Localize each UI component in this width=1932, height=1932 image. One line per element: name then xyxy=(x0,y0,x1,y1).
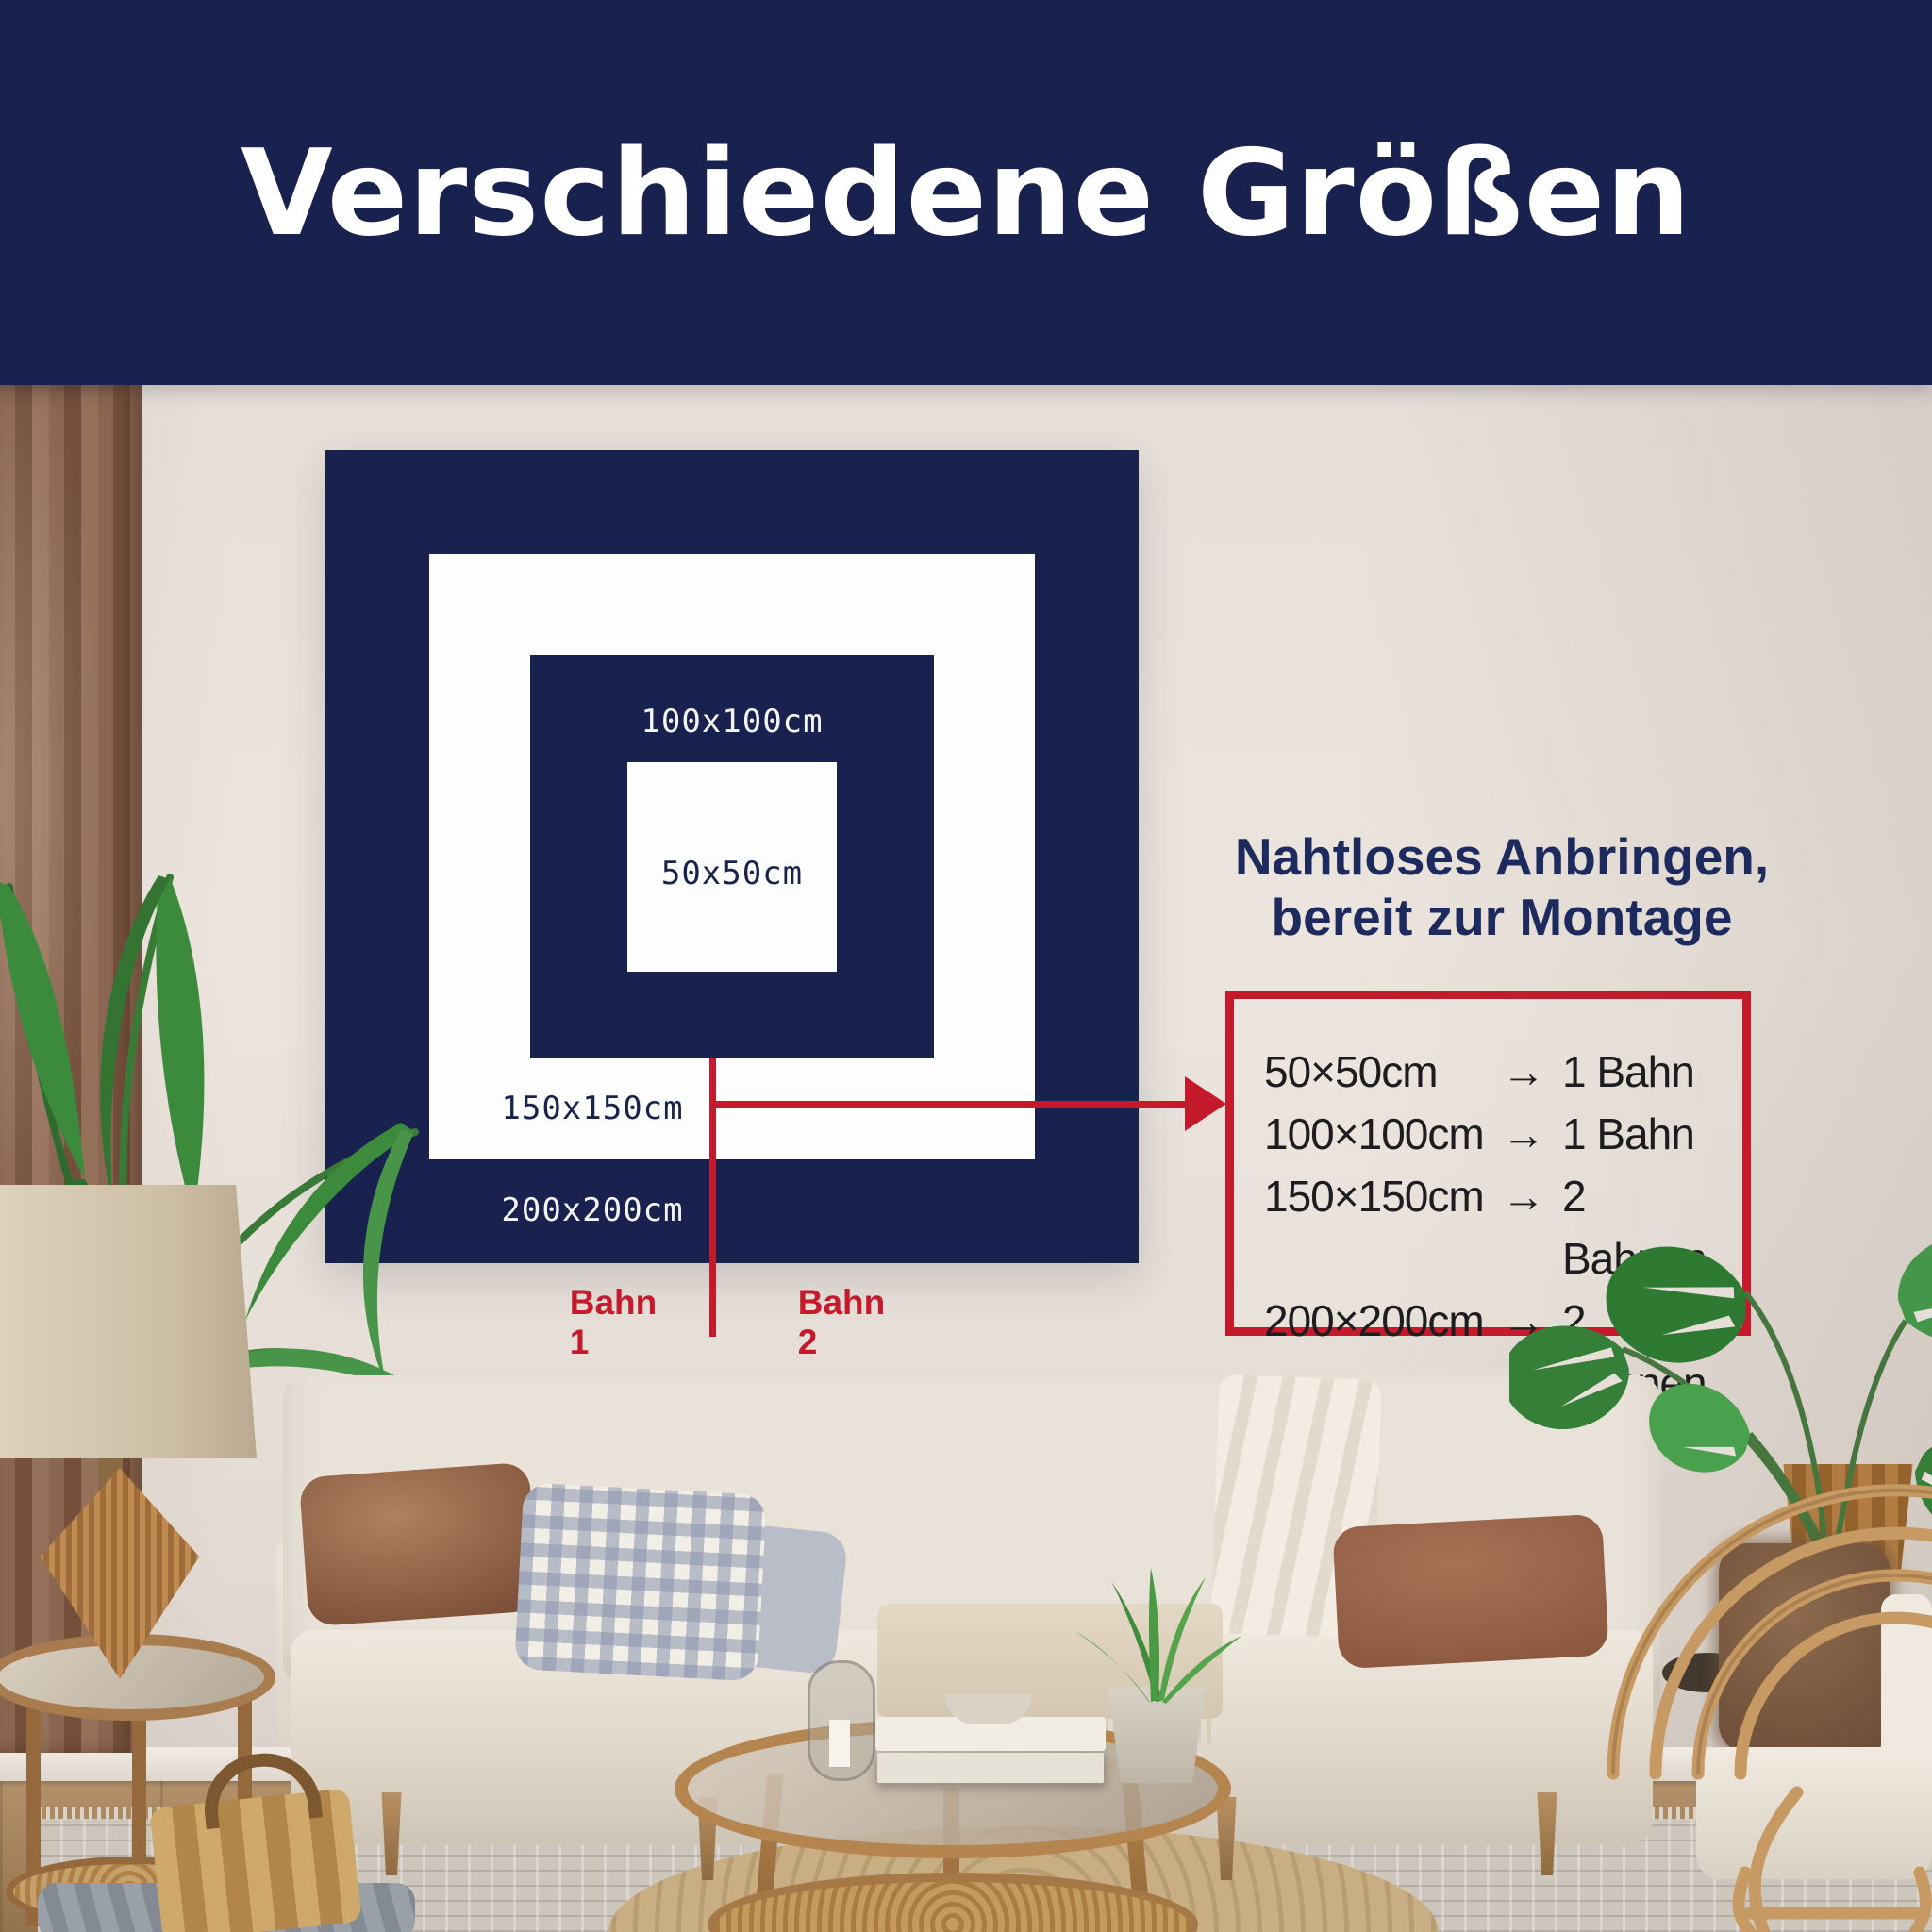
candle-holder xyxy=(808,1660,875,1781)
page-title: Verschiedene Größen xyxy=(241,124,1691,262)
row-size: 100×100cm xyxy=(1264,1103,1502,1165)
brown-velvet-pillow xyxy=(299,1462,539,1627)
checked-pillow xyxy=(514,1482,767,1681)
rust-pillow xyxy=(1332,1514,1608,1670)
arrow-icon: → xyxy=(1502,1103,1562,1165)
red-arrow-head-icon xyxy=(1185,1076,1226,1131)
banner: Verschiedene Größen xyxy=(0,0,1932,385)
panel-heading: Nahtloses Anbringen, bereit zur Montage xyxy=(1219,826,1785,947)
rattan-armchair xyxy=(1604,1472,1932,1932)
lamp-shade xyxy=(0,1185,257,1458)
row-bahnen: 1 Bahn xyxy=(1562,1103,1733,1165)
bahn-2-label: Bahn 2 xyxy=(798,1283,886,1362)
label-150x150: 150x150cm xyxy=(501,1090,683,1127)
wicker-basket xyxy=(149,1788,362,1932)
label-50x50: 50x50cm xyxy=(661,855,803,892)
row-size: 150×150cm xyxy=(1264,1165,1502,1290)
product-size-infographic: 100x100cm 50x50cm 150x150cm 200x200cm Ba… xyxy=(0,0,1932,1932)
red-arrow-line xyxy=(709,1101,1189,1108)
table-row: 100×100cm → 1 Bahn xyxy=(1264,1103,1733,1165)
bahn-1-label: Bahn 1 xyxy=(570,1283,658,1362)
label-100x100: 100x100cm xyxy=(641,703,823,741)
heading-line-2: bereit zur Montage xyxy=(1219,887,1785,947)
label-200x200: 200x200cm xyxy=(501,1191,683,1229)
succulent-plant xyxy=(1057,1540,1255,1709)
table-row: 50×50cm → 1 Bahn xyxy=(1264,1041,1733,1103)
arrow-icon: → xyxy=(1502,1041,1562,1103)
row-bahnen: 1 Bahn xyxy=(1562,1041,1733,1103)
heading-line-1: Nahtloses Anbringen, xyxy=(1219,826,1785,887)
row-size: 50×50cm xyxy=(1264,1041,1502,1103)
